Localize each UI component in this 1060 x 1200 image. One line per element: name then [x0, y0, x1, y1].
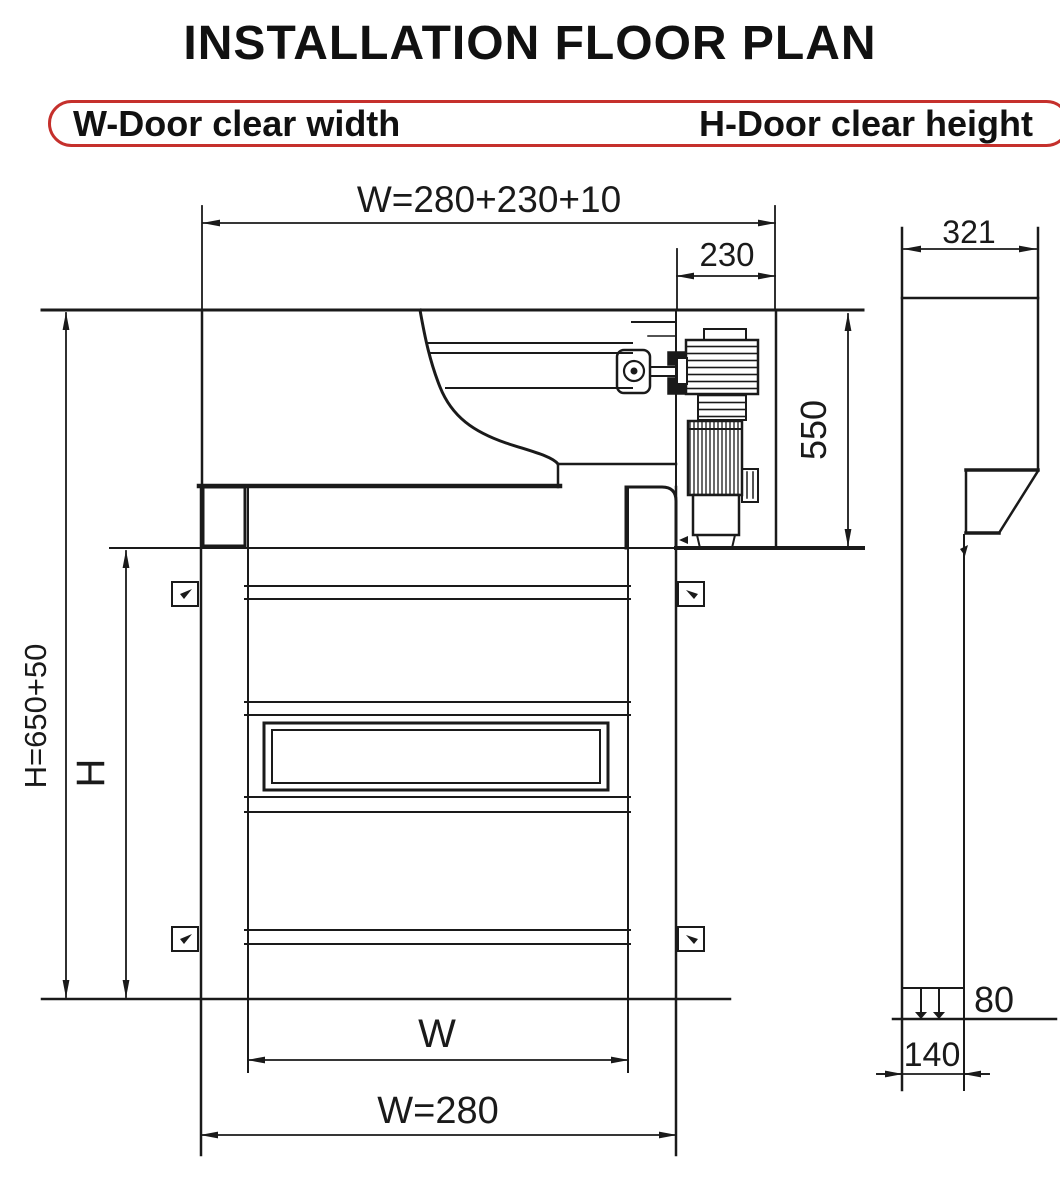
motor-body	[688, 421, 742, 495]
dim-550-label: 550	[793, 400, 834, 460]
shaft-coupling	[677, 358, 687, 384]
motor-base-arrow-icon	[679, 536, 688, 544]
anchor-left-upper-mark-icon	[180, 589, 192, 599]
dimension-annotations: W=280+230+10 230 321 550 H=650+50 H W W=…	[18, 179, 1036, 1135]
side-section-view	[893, 228, 1056, 1090]
installation-floor-plan-page: INSTALLATION FLOOR PLAN W-Door clear wid…	[0, 0, 1060, 1200]
right-rail-console	[626, 487, 676, 548]
left-rail-console	[203, 487, 245, 546]
dim-clear-height-label: H	[69, 759, 113, 788]
cover-bevel	[999, 471, 1038, 533]
anchor-left-lower-mark-icon	[180, 934, 192, 944]
dim-230-label: 230	[699, 236, 754, 273]
dim-321-label: 321	[942, 214, 995, 250]
dim-total-width-label: W=280+230+10	[357, 179, 621, 220]
gear-cap	[704, 329, 746, 340]
gear-stack	[686, 340, 758, 394]
dim-frame-width-label: W=280	[377, 1090, 498, 1132]
motor-junction-box	[742, 469, 758, 502]
gear-stack-lower	[698, 394, 746, 420]
roller-shaft-center	[631, 368, 638, 375]
window-panel-inner	[272, 730, 600, 783]
window-panel-outer	[264, 723, 608, 790]
dim-140-label: 140	[904, 1036, 961, 1074]
anchor-right-lower-mark-icon	[686, 935, 698, 944]
motor-endcap	[693, 495, 739, 535]
front-elevation-view	[42, 486, 730, 1155]
anchor-right-upper-mark-icon	[686, 590, 698, 599]
dim-total-height-label: H=650+50	[18, 644, 53, 789]
dim-80-label: 80	[974, 979, 1014, 1020]
plan-view-header-assembly	[42, 310, 863, 548]
floor-plan-drawing: W=280+230+10 230 321 550 H=650+50 H W W=…	[0, 0, 1060, 1200]
dim-clear-width-label: W	[418, 1012, 456, 1056]
